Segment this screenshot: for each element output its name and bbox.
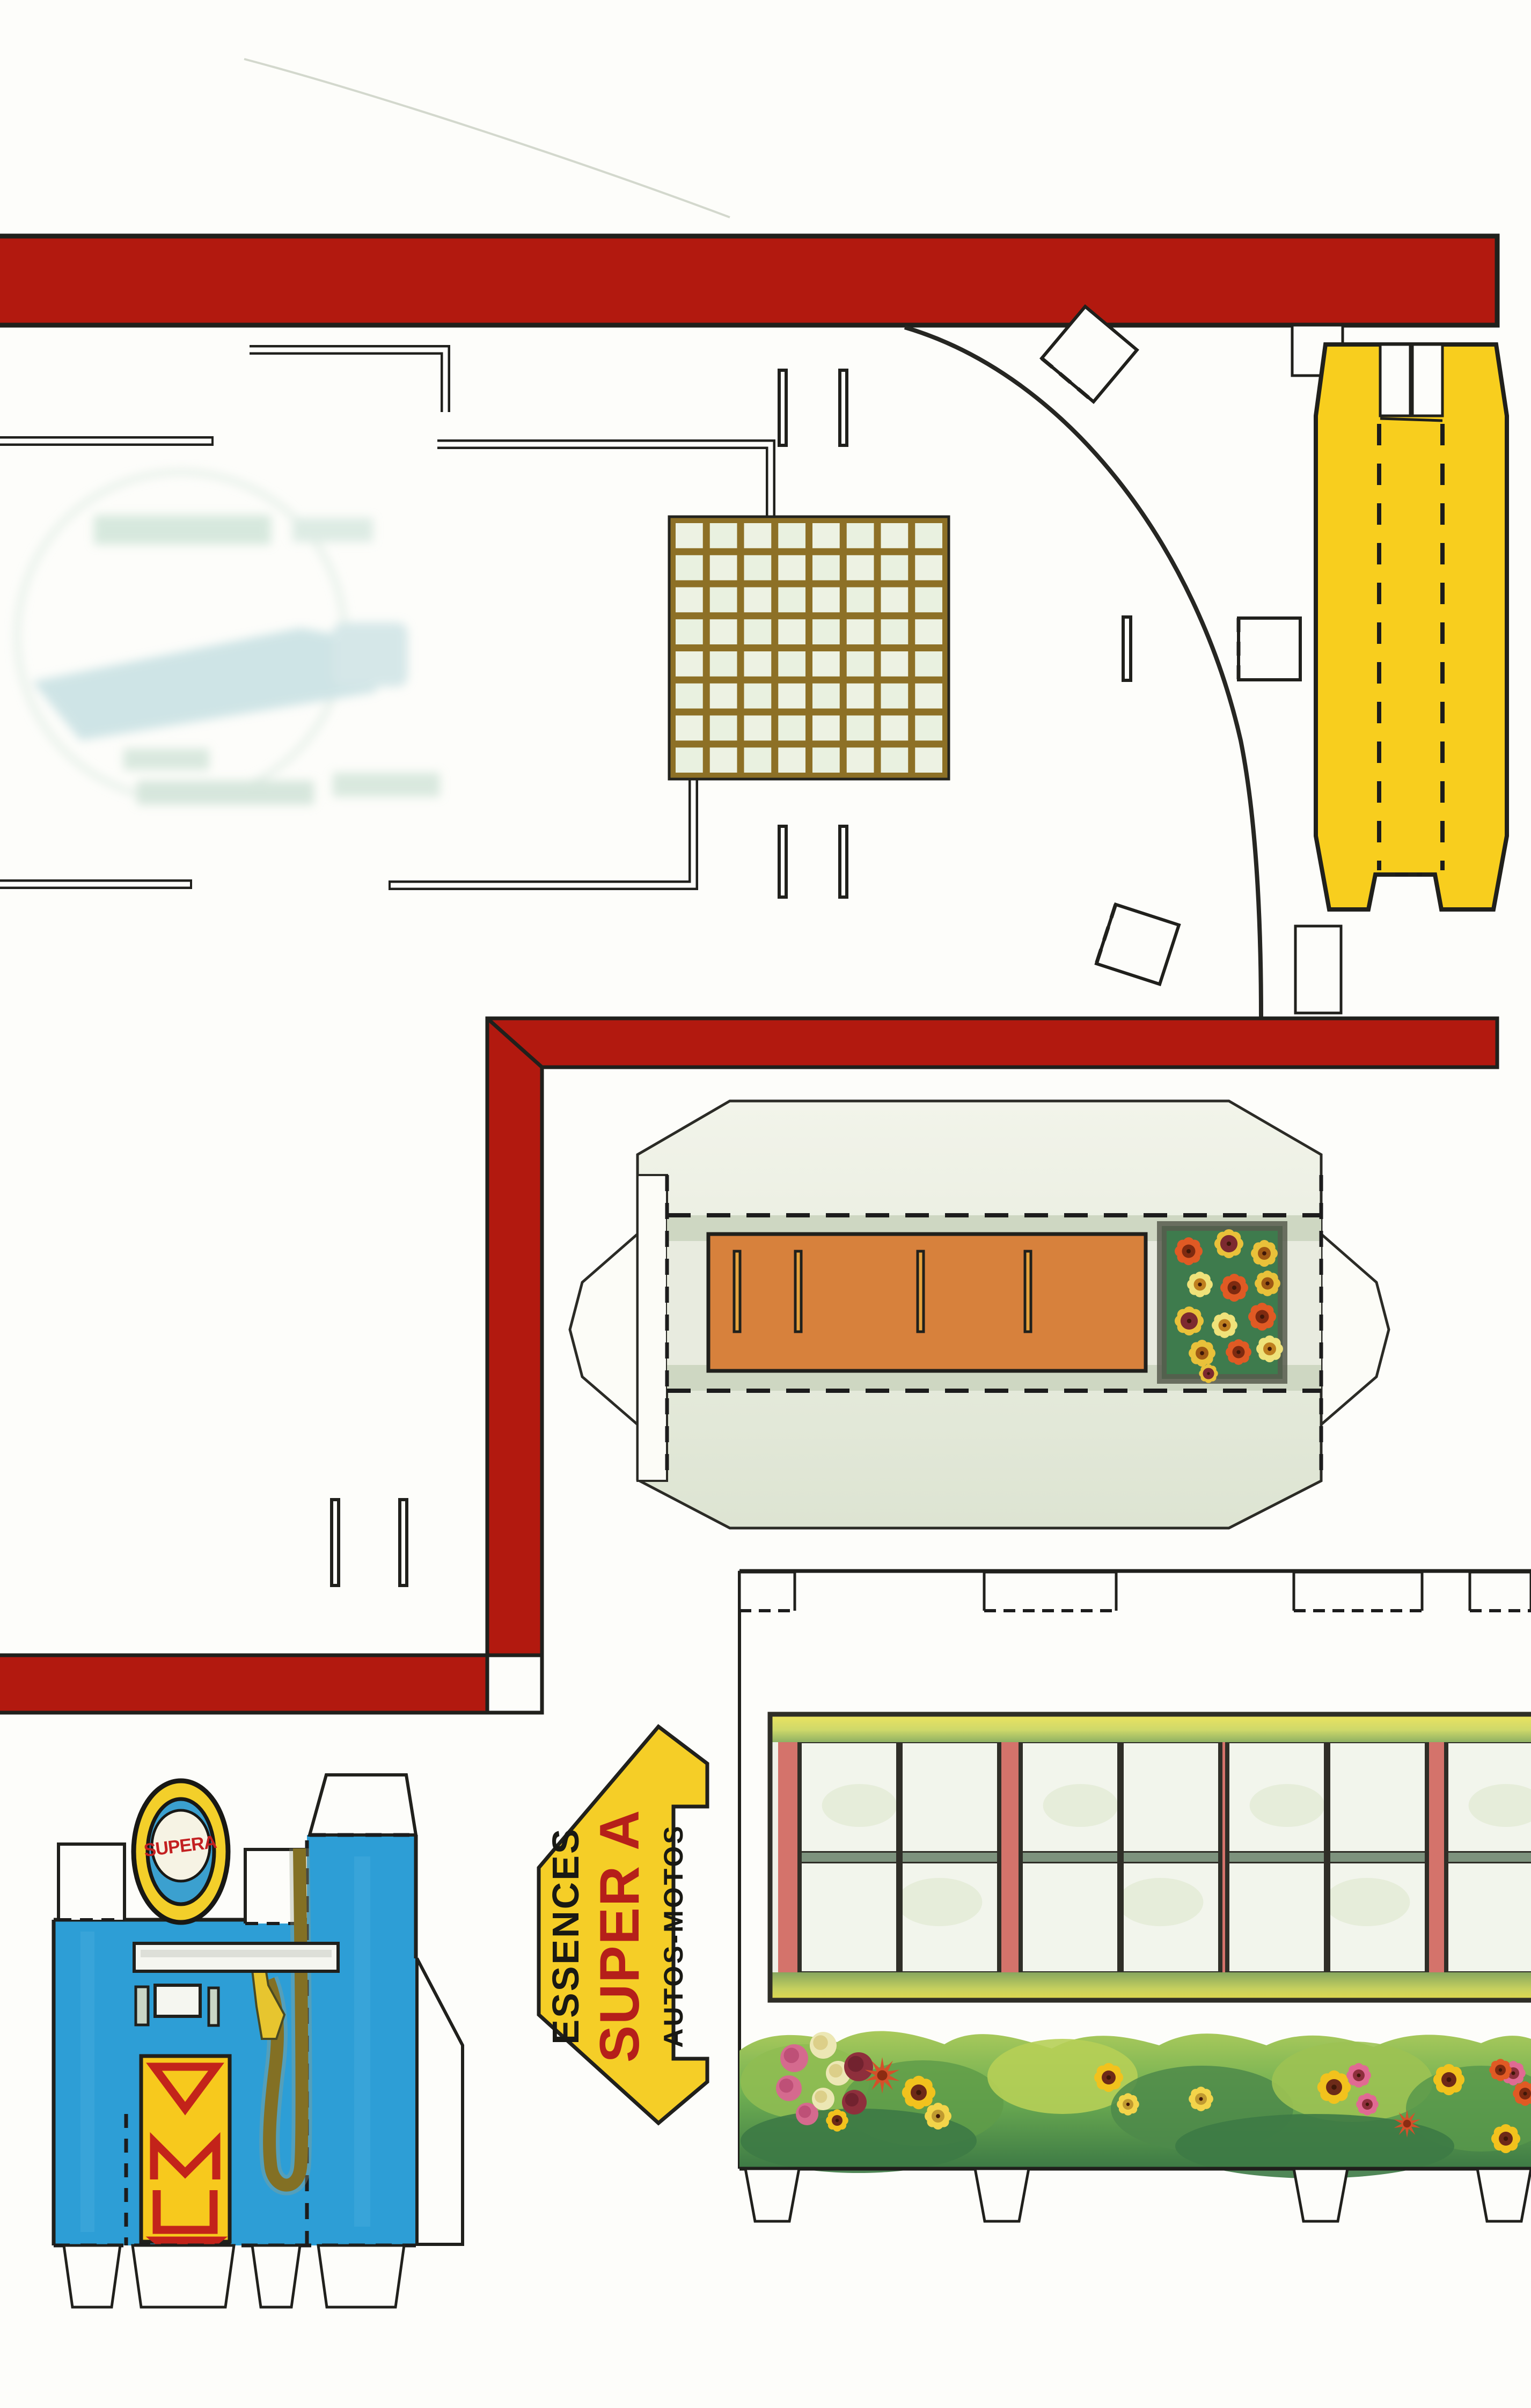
planter-slot (734, 1251, 740, 1332)
sign-line-super-a: SUPER A (589, 1809, 651, 2062)
flower-dot (1200, 1351, 1204, 1355)
flower-center (829, 2064, 843, 2077)
pane-tint (822, 1784, 897, 1827)
grid-cell (847, 619, 874, 644)
flower-dot (1187, 1319, 1191, 1323)
grid-cell (744, 716, 772, 741)
grid-cell (710, 651, 737, 677)
gas-pump-piece: SUPERA (54, 1775, 463, 2307)
flower-dot (836, 2119, 839, 2122)
grid-cell (676, 555, 703, 581)
grid-cell (778, 651, 805, 677)
flower-dot (1107, 2075, 1111, 2080)
grid-cell (881, 523, 909, 548)
grid-cell (881, 555, 909, 581)
grid-cell (915, 651, 942, 677)
glue-tab (739, 1572, 795, 1611)
flower-dot (1222, 1323, 1226, 1327)
grid-cell (847, 684, 874, 709)
flower-center (845, 2093, 859, 2106)
grid-cell (847, 555, 874, 581)
cut-slot (779, 826, 786, 897)
wall-top-tabs (739, 1572, 1531, 1611)
glue-tab (1470, 1572, 1531, 1611)
flower-center (799, 2105, 811, 2118)
papercraft-sheet: SUPERA ESSENCES SUPER A AUTOS-MOTOS (0, 0, 1531, 2408)
flower-dot (1262, 1251, 1266, 1256)
pilaster (999, 1741, 1021, 1973)
flower-dot (1198, 1282, 1202, 1286)
window-mullion (1117, 1741, 1124, 1973)
base-tab (975, 2169, 1029, 2221)
grid-cell (881, 684, 909, 709)
flower-dot (1126, 2103, 1130, 2106)
glue-tab (1295, 926, 1341, 1013)
cut-slot (840, 370, 847, 445)
base-tab (1294, 2169, 1347, 2221)
flower-center (848, 2056, 864, 2072)
grid-cell (847, 716, 874, 741)
flower-dot (1236, 1350, 1240, 1354)
grid-cell (744, 747, 772, 773)
pump-bottom-tabs (64, 2245, 404, 2307)
grid-cell (710, 588, 737, 613)
grid-cell (744, 619, 772, 644)
grid-cell (676, 523, 703, 548)
flower-dot (1511, 2071, 1515, 2075)
cut-slot (840, 826, 847, 897)
window-row (800, 1741, 1531, 1973)
pane-tint (1250, 1784, 1325, 1827)
glue-tab (1294, 1572, 1422, 1611)
grid-cell (881, 716, 909, 741)
flower-dot (1227, 1242, 1231, 1246)
grid-cell (778, 716, 805, 741)
grid-cell (710, 684, 737, 709)
flower-center (877, 2070, 887, 2080)
window-rail (1446, 1852, 1531, 1863)
flower-dot (1268, 1347, 1272, 1351)
flower-dot (1232, 1286, 1236, 1290)
yellow-pillar-piece (1316, 344, 1507, 909)
flower-center (779, 2079, 793, 2093)
grid-cell (778, 684, 805, 709)
grid-cell (847, 523, 874, 548)
cut-slot (779, 370, 786, 445)
grid-cell (676, 684, 703, 709)
grid-cell (778, 588, 805, 613)
flower-center (813, 2035, 828, 2050)
base-tab (1477, 2169, 1531, 2221)
base-tab (64, 2245, 120, 2307)
pane-tint (1117, 1878, 1203, 1926)
window-mullion (1324, 1741, 1330, 1973)
window-mullion (896, 1741, 903, 1973)
flower-dot (1199, 2097, 1203, 2101)
base-tab (318, 2245, 404, 2307)
grid-cell (778, 555, 805, 581)
building-wall-piece (739, 1571, 1531, 2221)
grid-cell (881, 619, 909, 644)
grid-cell (676, 619, 703, 644)
pane-tint (896, 1878, 982, 1926)
grid-cell (915, 555, 942, 581)
flower-center (1403, 2120, 1411, 2128)
cut-slot (332, 1500, 339, 1585)
grid-cell (812, 716, 840, 741)
flower-dot (1207, 1372, 1210, 1375)
grid-cell (744, 523, 772, 548)
grid-cell (676, 716, 703, 741)
grid-cell (915, 716, 942, 741)
grid-cell (915, 747, 942, 773)
planter-orange-panel (708, 1234, 1146, 1371)
grid-cell (915, 619, 942, 644)
wall-bottom-tabs (745, 2169, 1531, 2221)
flower-dot (1260, 1315, 1264, 1319)
scan-ghost-line (244, 59, 730, 217)
grid-cell (812, 555, 840, 581)
grid-cell (744, 555, 772, 581)
grid-cell (744, 684, 772, 709)
grid-cell (710, 555, 737, 581)
pilaster (778, 1741, 800, 1973)
flower-center (784, 2048, 800, 2064)
canopy-red-stripe-top (0, 236, 1497, 325)
grid-cell (847, 588, 874, 613)
pane-tint (1043, 1784, 1118, 1827)
flower-dot (1357, 2073, 1360, 2077)
grid-cell (812, 588, 840, 613)
cut-slot (400, 1500, 407, 1585)
flower-dot (1523, 2091, 1527, 2095)
cut-slot (1123, 617, 1131, 680)
canopy-slot-strips (0, 350, 771, 885)
grid-cell (812, 651, 840, 677)
planter-box-piece (570, 1101, 1389, 1528)
grid-cell (710, 747, 737, 773)
pump-globe: SUPERA (134, 1781, 228, 1922)
grid-cell (812, 747, 840, 773)
grid-cell (881, 651, 909, 677)
sign-line-essences: ESSENCES (545, 1827, 587, 2044)
grid-cell (812, 684, 840, 709)
grid-cell (881, 588, 909, 613)
flower-dot (1447, 2077, 1452, 2082)
grid-cell (812, 523, 840, 548)
grid-cell (915, 588, 942, 613)
flower-dot (1366, 2103, 1369, 2106)
base-tab (133, 2245, 234, 2307)
grid-cell (744, 588, 772, 613)
grid-cell (744, 651, 772, 677)
grid-cell (915, 684, 942, 709)
planter-slot (795, 1251, 801, 1332)
planter-slot (1025, 1251, 1031, 1332)
grid-cell (812, 619, 840, 644)
base-tab (745, 2169, 799, 2221)
grid-cell (676, 747, 703, 773)
planter-slot (918, 1251, 924, 1332)
pane-tint (1324, 1878, 1410, 1926)
faded-stamp-watermark (17, 472, 440, 805)
flower-dot (1504, 2137, 1508, 2141)
flower-dot (1186, 1249, 1191, 1253)
grid-cell (778, 747, 805, 773)
flower-dot (916, 2090, 921, 2095)
sign-line-autos-motos: AUTOS-MOTOS (658, 1824, 688, 2047)
grid-cell (710, 716, 737, 741)
grid-cell (710, 523, 737, 548)
flower-center (815, 2090, 827, 2103)
grid-cell (676, 651, 703, 677)
flower-dot (936, 2114, 940, 2118)
grid-cell (915, 523, 942, 548)
grid-cell (847, 747, 874, 773)
base-tab (252, 2245, 300, 2307)
flower-dot (1265, 1281, 1269, 1285)
flower-dot (1331, 2084, 1337, 2090)
grid-cell (778, 619, 805, 644)
grid-cell (847, 651, 874, 677)
essences-sign-piece: ESSENCES SUPER A AUTOS-MOTOS (539, 1727, 707, 2123)
canopy-lattice-grid (669, 517, 949, 779)
flower-dot (1499, 2068, 1502, 2072)
glue-tab (984, 1572, 1116, 1611)
grid-cell (710, 619, 737, 644)
grid-cell (778, 523, 805, 548)
grid-cell (676, 588, 703, 613)
sheet-artwork: SUPERA ESSENCES SUPER A AUTOS-MOTOS (0, 0, 1531, 2408)
grid-cell (881, 747, 909, 773)
